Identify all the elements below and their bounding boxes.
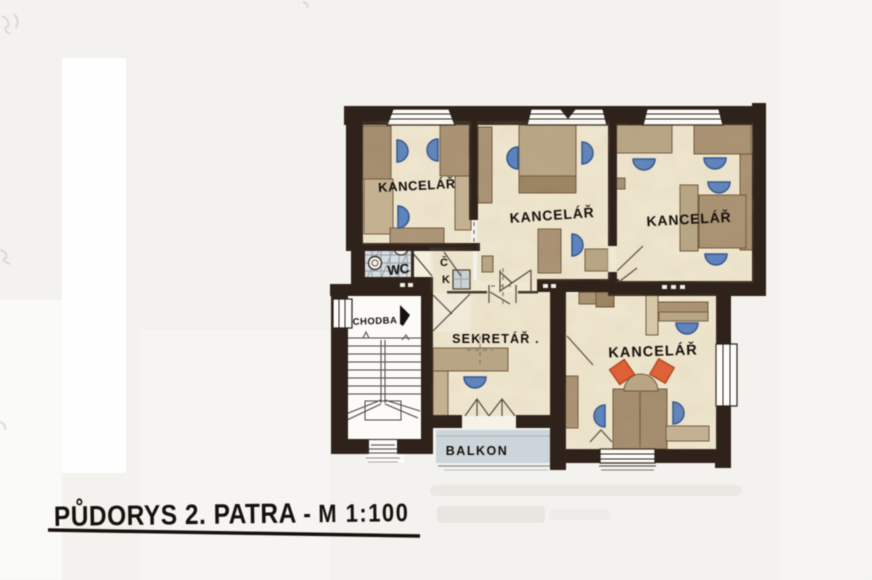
svg-text:BALKON: BALKON [446, 444, 508, 458]
svg-text:Č: Č [440, 256, 448, 269]
svg-text:SEKRETÁŘ .: SEKRETÁŘ . [452, 331, 540, 346]
svg-text:K: K [442, 274, 450, 286]
svg-text:CHODBA: CHODBA [352, 315, 397, 328]
svg-text:WC: WC [387, 261, 411, 278]
